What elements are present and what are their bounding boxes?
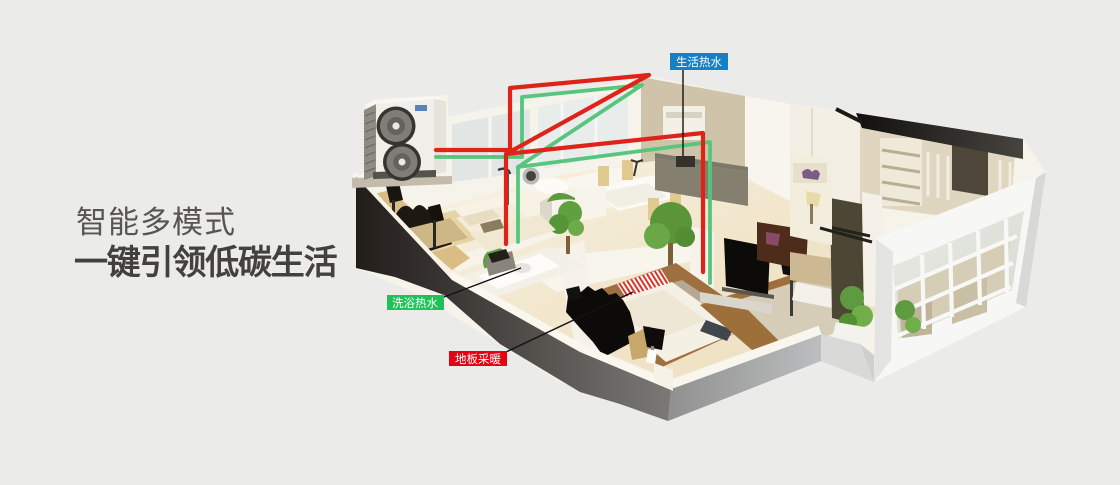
- svg-text:洗浴热水: 洗浴热水: [392, 297, 438, 310]
- svg-text:地板采暖: 地板采暖: [455, 352, 501, 366]
- svg-text:生活热水: 生活热水: [676, 55, 722, 69]
